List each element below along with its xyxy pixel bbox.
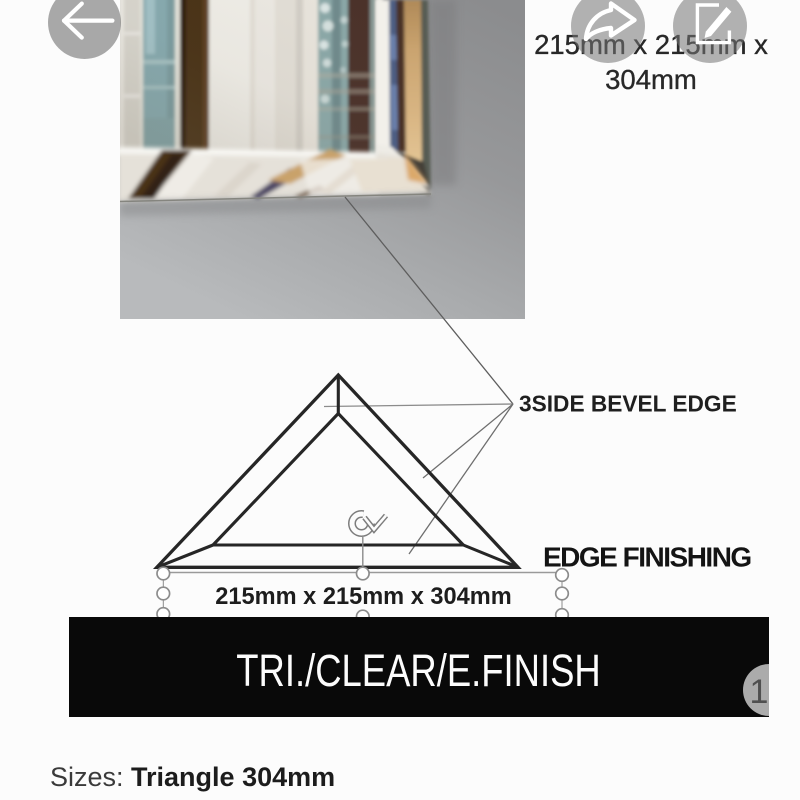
svg-text:1: 1	[750, 673, 769, 711]
svg-text:TRI./CLEAR/E.FINISH: TRI./CLEAR/E.FINISH	[236, 645, 600, 696]
